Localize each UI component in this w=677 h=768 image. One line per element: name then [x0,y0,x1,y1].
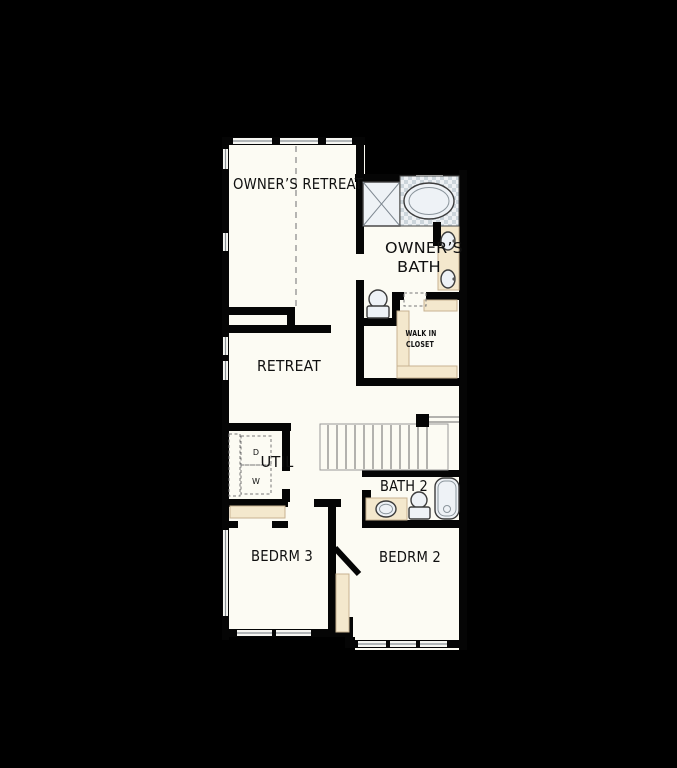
window [358,640,447,648]
bedrm2-closet-shelf [336,574,349,632]
wall-retreat-a [228,307,295,315]
room-label-bath-2: BATH 2 [380,477,428,495]
wall-hall-tcap [314,499,341,507]
bathtub [400,176,459,226]
room-label-walk-in-closet-2: CLOSET [406,340,434,349]
wall-bedroom-divider [328,499,336,634]
wall-closet-top-a [392,292,404,300]
washer-label: W [252,477,260,486]
window [237,629,311,637]
wall-util-top [228,423,291,431]
closet-shelf-top [424,300,457,311]
wall-divider-lower [356,280,364,386]
wall-bedrm2-top [362,520,466,528]
wall-bedrm3-closet-a [222,521,238,528]
wall-closet-bottom [356,378,460,386]
stair-newel [416,414,429,427]
room-label-owners-bath-2: BATH [397,258,441,276]
dryer-label: D [253,448,259,457]
sink [441,270,456,288]
floor-plan-canvas: D W OWNER’S RETREAT OWNER’S BATH WALK IN… [0,0,677,768]
closet-shelf-bottom [397,366,457,378]
floor-plan-image: D W OWNER’S RETREAT OWNER’S BATH WALK IN… [0,0,677,768]
room-label-bedrm-3: BEDRM 3 [251,547,313,565]
shower [363,182,400,226]
wall-bath2-top [362,470,459,477]
wall-closet-top-b [426,292,460,300]
room-label-bedrm-2: BEDRM 2 [379,548,441,566]
room-label-retreat: RETREAT [257,357,322,375]
toilet [367,290,389,318]
room-label-owners-retreat: OWNER’S RETREAT [233,175,364,193]
bedrm3-closet-shelf [230,506,285,518]
wall-bedrm3-closet-b [272,521,288,528]
wall-retreat-b [228,325,331,333]
sink [376,501,396,517]
room-label-owners-bath-1: OWNER’S [385,239,463,257]
bathtub [435,478,459,519]
room-label-walk-in-closet-1: WALK IN [406,329,437,338]
window [233,138,352,144]
room-label-util: UTIL [261,453,294,471]
